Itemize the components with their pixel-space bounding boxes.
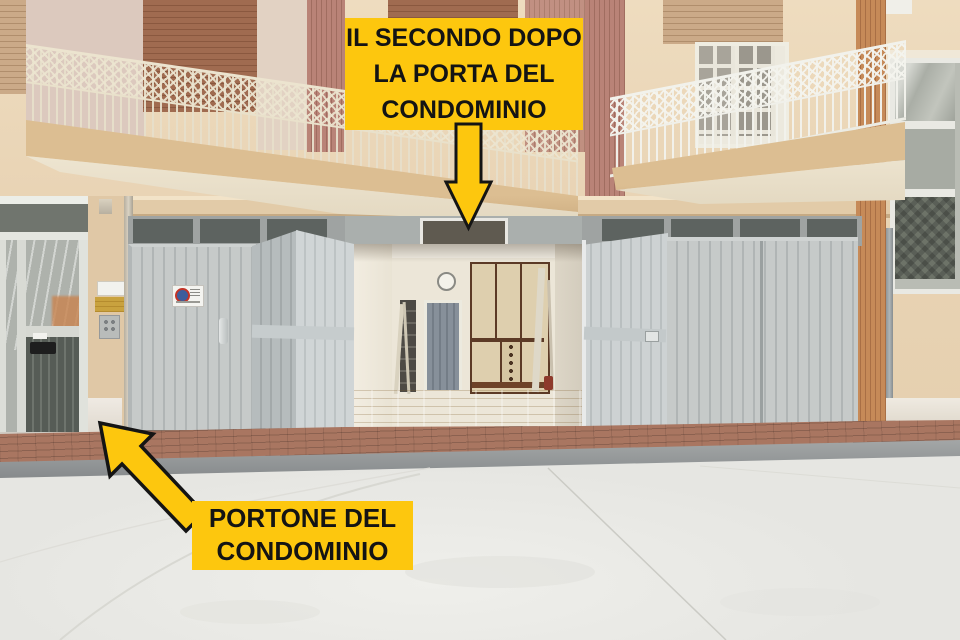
label-line: PORTONE DEL	[192, 502, 413, 535]
open-leaf-edge	[582, 240, 586, 444]
down-arrow-icon	[440, 122, 500, 236]
garage-interior	[345, 244, 585, 440]
entrance-frame-bar	[0, 232, 90, 240]
condominium-entrance-door	[0, 196, 90, 446]
fold-mid-rail	[252, 325, 354, 341]
label-line: CONDOMINIO	[192, 535, 413, 568]
label-line: IL SECONDO DOPO	[345, 20, 583, 56]
mail-slot	[30, 342, 56, 354]
door-handle-left	[219, 318, 228, 344]
broom-head	[544, 376, 553, 390]
no-parking-sign	[172, 285, 204, 307]
open-leaf-lock	[645, 331, 659, 342]
wardrobe-divider	[495, 264, 497, 338]
brass-plate	[95, 297, 125, 312]
wall-lamp	[99, 199, 112, 214]
annotation-label-top: IL SECONDO DOPO LA PORTA DEL CONDOMINIO	[345, 18, 583, 130]
sign-text-line	[176, 301, 200, 303]
name-plate	[33, 333, 47, 339]
interior-top-shadow	[345, 244, 585, 262]
transom-pane	[133, 219, 193, 243]
closed-door-seam	[760, 241, 763, 431]
transom-pane	[200, 219, 260, 243]
garage-door-left-flat	[128, 244, 256, 439]
entrance-transom-glass	[0, 204, 90, 232]
wardrobe-divider	[520, 264, 522, 338]
entrance-frame-top	[0, 196, 90, 204]
entrance-stile	[0, 240, 6, 432]
wardrobe-drawers	[500, 342, 522, 382]
wall-clock	[437, 272, 456, 291]
intercom-panel	[99, 315, 120, 339]
right-balcony-slab	[605, 115, 910, 215]
photo-scene: IL SECONDO DOPO LA PORTA DEL CONDOMINIO …	[0, 0, 960, 640]
annotation-label-bottom: PORTONE DEL CONDOMINIO	[192, 501, 413, 570]
garage-door-right-open-leaf	[582, 231, 668, 455]
entrance-stile	[17, 240, 26, 432]
garage-door-left-fold-a	[252, 228, 298, 450]
entrance-glass	[0, 240, 90, 432]
sign-text-lines	[190, 289, 200, 298]
label-line: LA PORTA DEL	[345, 56, 583, 92]
interior-door	[427, 303, 459, 390]
white-name-plate	[97, 281, 125, 296]
